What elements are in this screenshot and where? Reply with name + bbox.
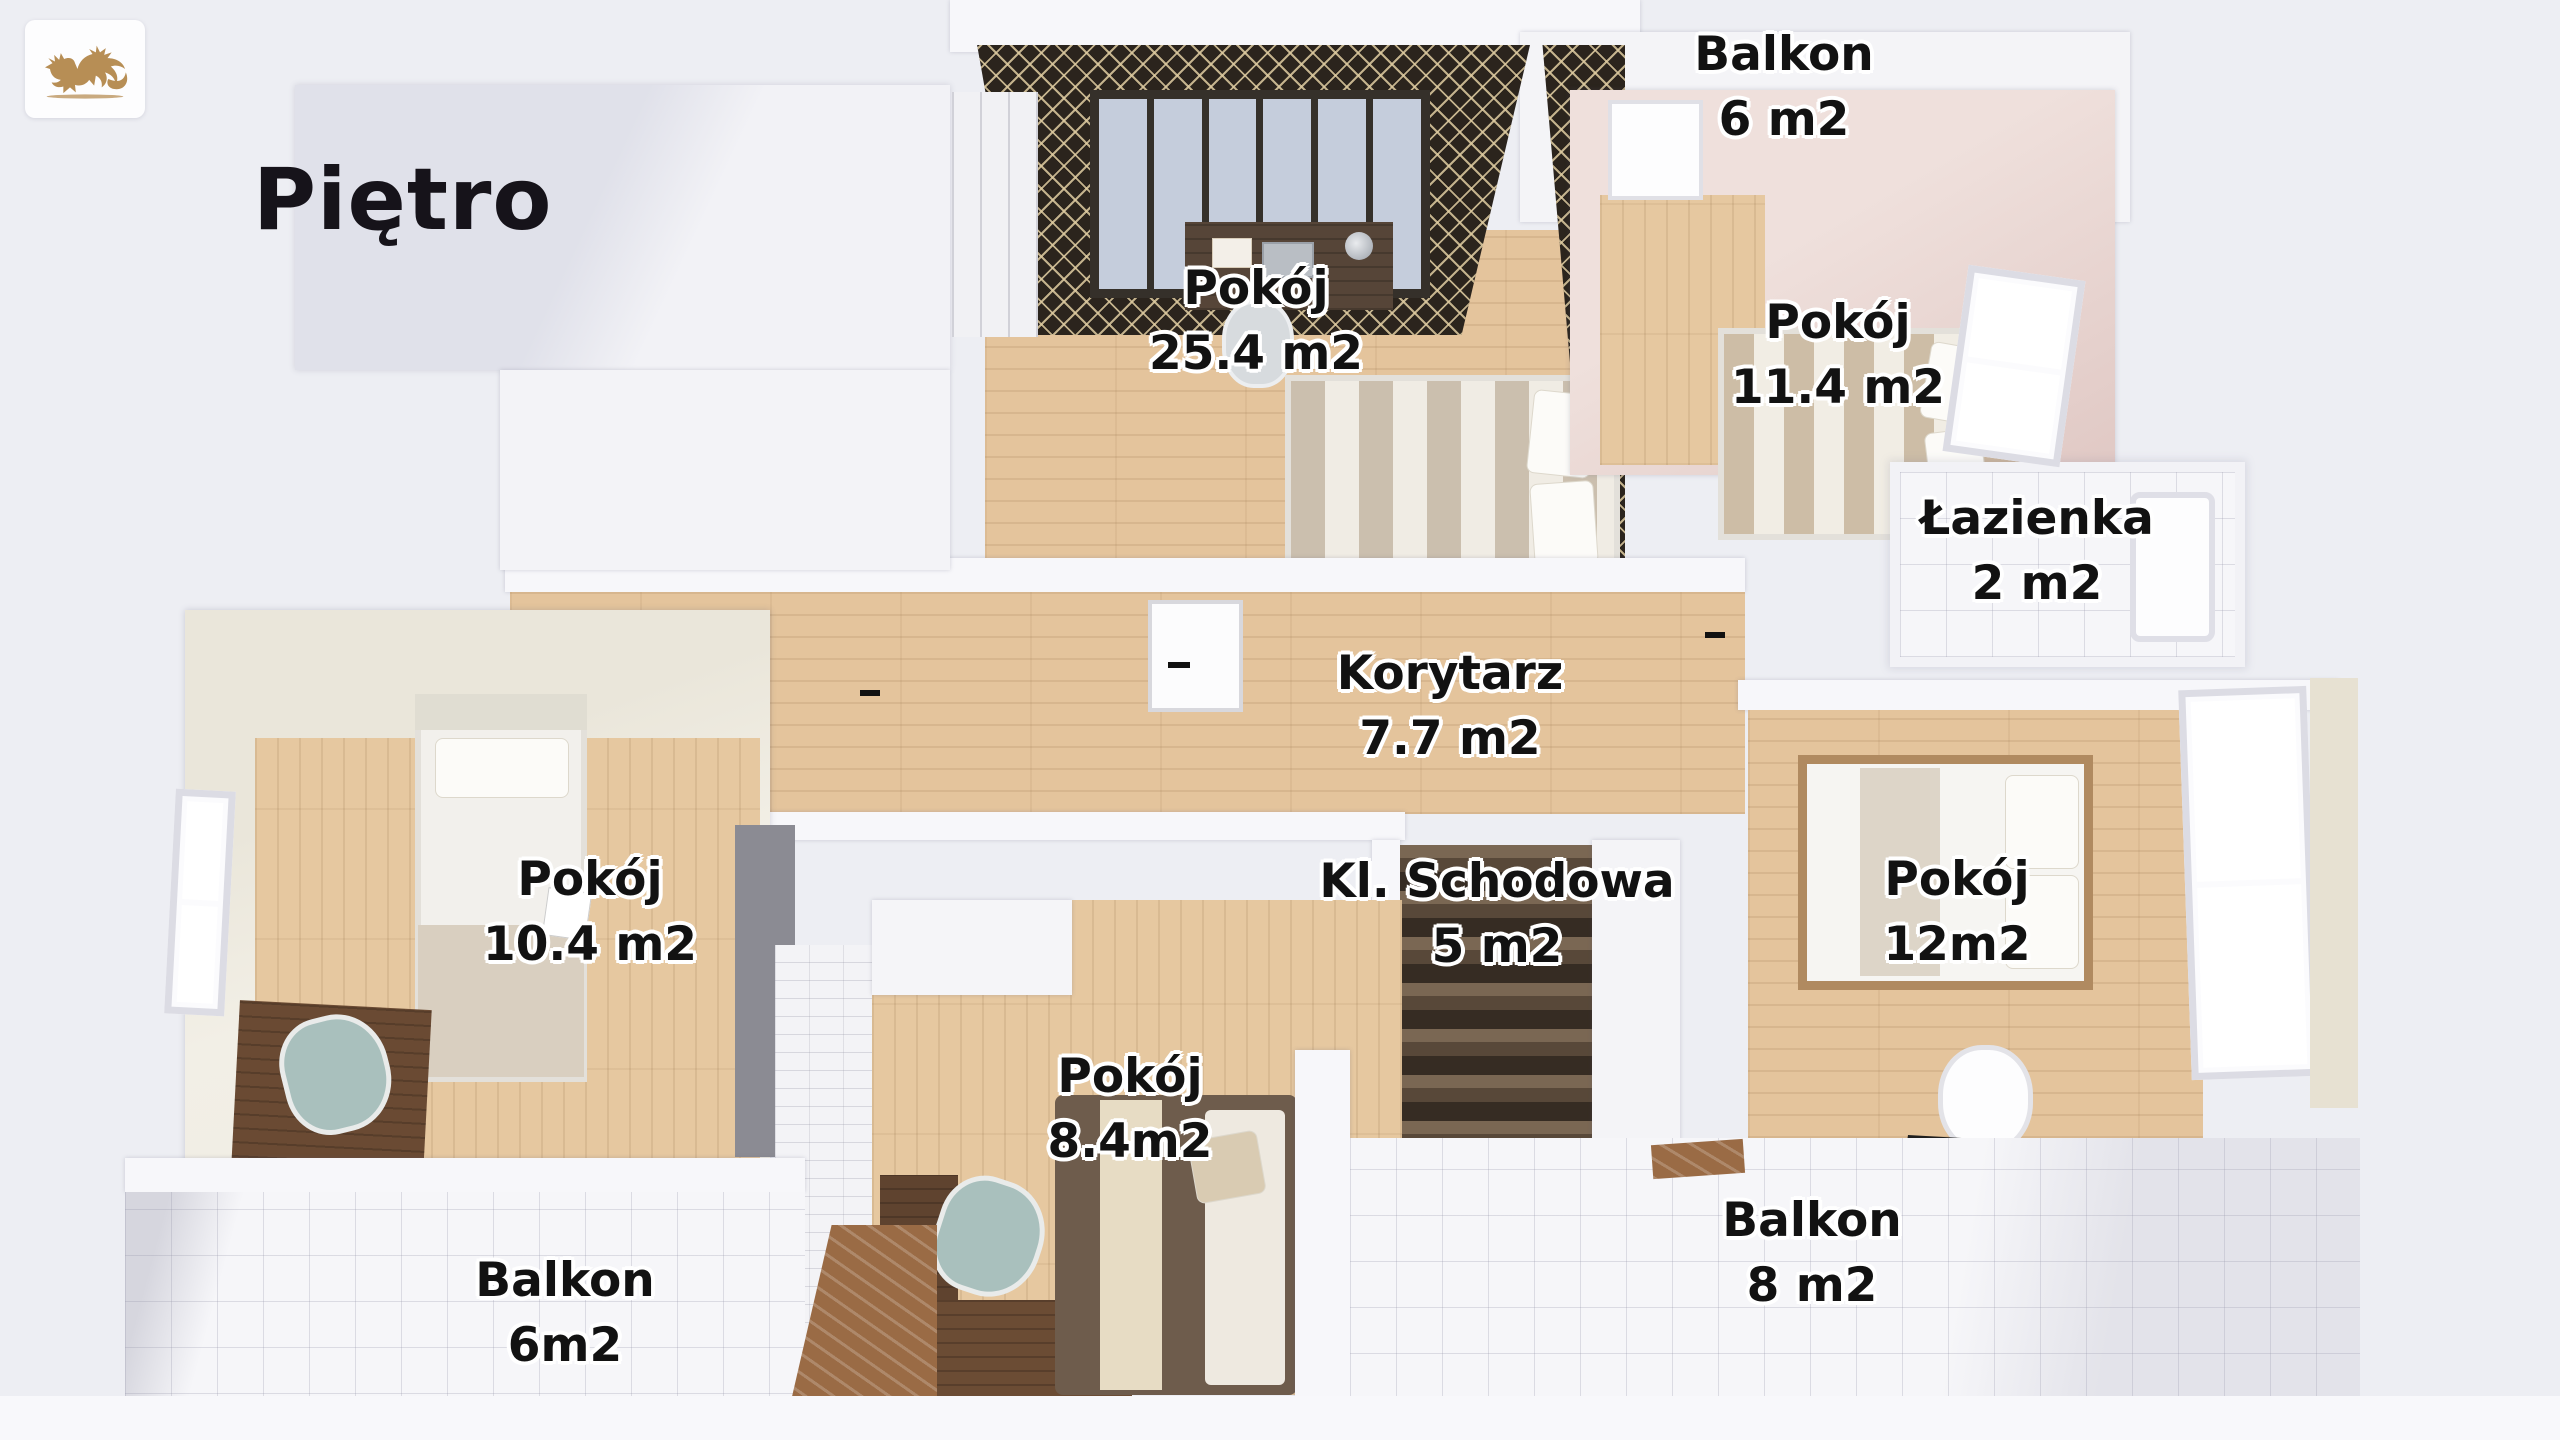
room-12-window: [2178, 686, 2320, 1080]
window-pane: [1956, 362, 2060, 453]
room-name: Balkon: [475, 1249, 654, 1314]
room-label-balkon-top: Balkon 6 m2: [1694, 23, 1873, 153]
corridor-door: [1148, 600, 1243, 712]
window-pane: [177, 905, 218, 1004]
floor-plan-scene: Piętro Balkon 6 m2 Pokój 25.4 m2 Pokój 1…: [0, 0, 2560, 1440]
room-25-wardrobe: [952, 92, 1038, 337]
closet-wall: [500, 370, 950, 570]
room-area: 8 m2: [1722, 1254, 1901, 1319]
room-area: 6m2: [475, 1314, 654, 1379]
room-name: Łazienka: [1920, 487, 2154, 552]
room-area: 7.7 m2: [1337, 707, 1563, 772]
desk-lamp: [1345, 232, 1373, 260]
room-8-closet: [872, 900, 1072, 995]
chair-white: [1938, 1045, 2033, 1153]
balcony-left-wall: [125, 1158, 805, 1192]
bottom-parapet: [0, 1396, 2560, 1440]
room-name: Pokój: [1883, 848, 2030, 913]
window-pane: [1099, 99, 1147, 289]
room-area: 12m2: [1883, 913, 2030, 978]
balcony-wood-marker: [1651, 1139, 1745, 1179]
window-pane: [2191, 698, 2301, 882]
room-area: 6 m2: [1694, 88, 1873, 153]
room-12-right-wall: [2310, 678, 2358, 1108]
room-label-pokoj-12: Pokój 12m2: [1883, 848, 2030, 978]
dragon-icon: [35, 34, 135, 104]
window-pane: [1968, 278, 2072, 369]
room-label-kl-schodowa: Kl. Schodowa 5 m2: [1319, 850, 1674, 980]
room-label-balkon-left: Balkon 6m2: [475, 1249, 654, 1379]
room-area: 11.4 m2: [1731, 356, 1945, 421]
logo-box: [25, 20, 145, 118]
door-handle: [1705, 632, 1725, 638]
room-label-pokoj-10-4: Pokój 10.4 m2: [483, 848, 697, 978]
window-pane: [182, 801, 223, 900]
room-name: Pokój: [483, 848, 697, 913]
window-pane: [2197, 884, 2307, 1068]
room-name: Korytarz: [1337, 642, 1563, 707]
room-label-pokoj-25: Pokój 25.4 m2: [1149, 257, 1363, 387]
bed-pillow: [1529, 480, 1599, 568]
room-name: Pokój: [1048, 1045, 1213, 1110]
room-area: 25.4 m2: [1149, 322, 1363, 387]
room-area: 8.4m2: [1048, 1110, 1213, 1175]
bed-pillow: [435, 738, 569, 798]
room-name: Kl. Schodowa: [1319, 850, 1674, 915]
room-name: Pokój: [1149, 257, 1363, 322]
room-area: 2 m2: [1920, 552, 2154, 617]
room-label-balkon-right: Balkon 8 m2: [1722, 1189, 1901, 1319]
room-10-headboard: [415, 694, 587, 730]
room-label-korytarz: Korytarz 7.7 m2: [1337, 642, 1563, 772]
room-label-lazienka: Łazienka 2 m2: [1920, 487, 2154, 617]
door-handle: [1168, 662, 1190, 668]
room-10-window: [164, 789, 236, 1017]
room-8-right-wall: [1295, 1050, 1350, 1440]
room-name: Balkon: [1722, 1189, 1901, 1254]
room-name: Pokój: [1731, 291, 1945, 356]
room-name: Balkon: [1694, 23, 1873, 88]
door-handle: [860, 690, 880, 696]
room-label-pokoj-8-4: Pokój 8.4m2: [1048, 1045, 1213, 1175]
room-area: 5 m2: [1319, 915, 1674, 980]
page-title: Piętro: [253, 150, 552, 250]
room-label-pokoj-11-4: Pokój 11.4 m2: [1731, 291, 1945, 421]
room-11-door-white: [1608, 100, 1703, 200]
room-area: 10.4 m2: [483, 913, 697, 978]
